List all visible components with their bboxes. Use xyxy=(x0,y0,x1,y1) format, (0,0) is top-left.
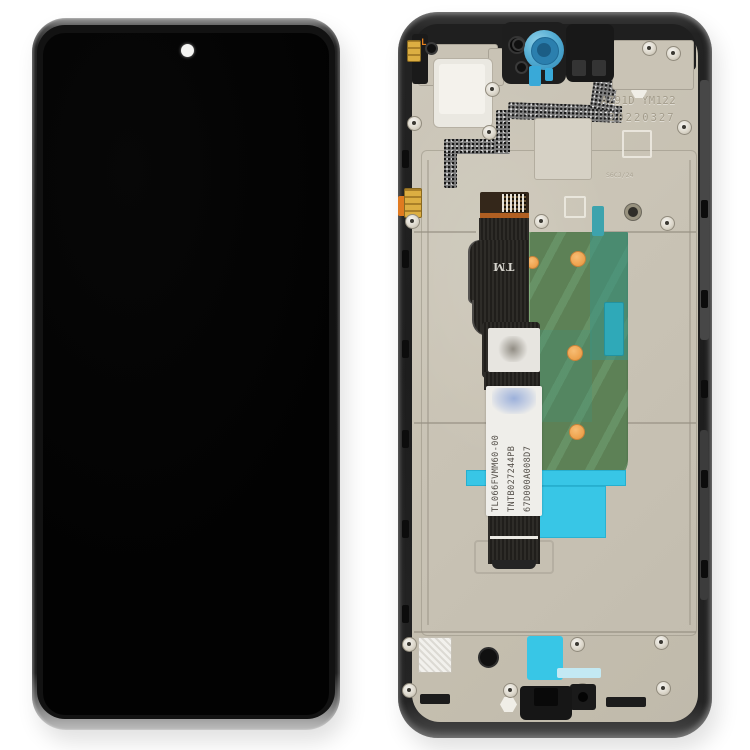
plate-square-outline xyxy=(622,130,652,158)
connector-stiffener-line xyxy=(490,536,538,539)
rail-slot xyxy=(402,430,409,448)
rail-slot xyxy=(402,250,409,268)
camera-sticker-leg xyxy=(529,66,541,86)
screw-boss xyxy=(570,637,585,652)
screw-boss xyxy=(654,635,669,650)
bottom-tab xyxy=(606,697,646,707)
flex-bottom-connector xyxy=(488,516,540,564)
plate-light-square xyxy=(534,118,592,180)
screw-boss xyxy=(534,214,549,229)
screw-boss xyxy=(666,46,681,61)
speaker-cutout xyxy=(592,60,606,76)
gold-contacts-top xyxy=(407,40,421,62)
rail-slot xyxy=(701,200,708,218)
orange-pad xyxy=(569,424,585,440)
punch-hole-camera-dot xyxy=(181,44,194,57)
bottom-paleblue-sticker xyxy=(557,668,601,678)
dark-screw xyxy=(515,61,528,74)
connector-tip xyxy=(492,560,536,569)
cyan-sticker-large xyxy=(538,486,606,538)
flex-tm-mark-wrap: TM xyxy=(490,258,516,274)
flex-label-blue-smudge xyxy=(492,388,536,414)
camera-lens-hole xyxy=(537,43,551,57)
screw-boss xyxy=(402,637,417,652)
screw-boss xyxy=(660,216,675,231)
plate-seam xyxy=(414,631,696,633)
product-photo-canvas: Y16Y1 AZ91D YM122 20220327 S6CJ/24 L xyxy=(0,0,750,750)
bottom-white-sticker xyxy=(418,637,452,673)
orange-pad xyxy=(570,251,586,267)
engraved-small-code: S6CJ/24 xyxy=(606,171,633,179)
rail-slot xyxy=(701,380,708,398)
screw-boss xyxy=(405,214,420,229)
screw-boss xyxy=(677,120,692,135)
screw-boss xyxy=(485,82,500,97)
screw-boss xyxy=(656,681,671,696)
screw-boss xyxy=(407,116,422,131)
camera-sticker-leg xyxy=(545,68,553,81)
plate-seam xyxy=(414,231,476,233)
bottom-tab xyxy=(420,694,450,704)
rail-slot xyxy=(402,340,409,358)
plate-seam-vertical xyxy=(427,160,429,625)
plate-round-hole xyxy=(625,204,641,220)
flex-small-label-smudge xyxy=(498,336,528,362)
orange-pad xyxy=(567,345,583,361)
plate-seam xyxy=(414,422,486,424)
flex-qr-code xyxy=(502,194,526,212)
engraved-date-code: 20220327 xyxy=(609,112,676,124)
screw-boss xyxy=(482,125,497,140)
pcb-teal-overlay xyxy=(536,330,592,422)
teal-tab-sticker xyxy=(592,206,604,236)
rail-slot xyxy=(402,150,409,168)
rail-slot xyxy=(701,560,708,578)
bottom-mic-hole xyxy=(478,647,499,668)
screw-boss xyxy=(402,683,417,698)
rail-slot xyxy=(402,605,409,623)
speaker-cutout xyxy=(572,60,586,76)
bottom-port-notch xyxy=(534,688,558,706)
rail-slot xyxy=(402,520,409,538)
flex-tm-mark: TM xyxy=(492,260,514,273)
plate-seam-vertical xyxy=(689,160,691,625)
plate-square-outline-small xyxy=(564,196,586,218)
screw-boss xyxy=(642,41,657,56)
teal-rect-sticker xyxy=(604,302,624,356)
rail-slot xyxy=(701,290,708,308)
screw-boss xyxy=(503,683,518,698)
front-phone-screen xyxy=(43,33,329,715)
earpiece-plate-inner xyxy=(439,64,485,114)
dark-screw xyxy=(425,42,438,55)
dark-screw xyxy=(512,38,525,51)
rail-slot xyxy=(701,470,708,488)
bottom-jack-hole xyxy=(578,692,588,702)
